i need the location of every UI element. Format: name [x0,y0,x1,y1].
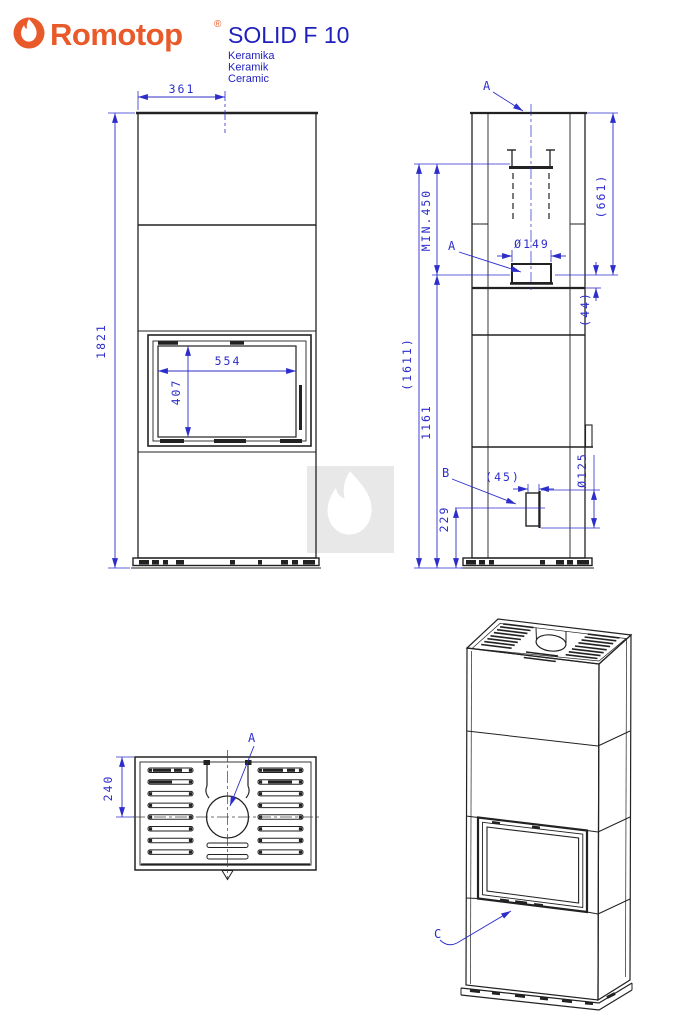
svg-text:C: C [434,927,442,941]
iso-flue-hole [524,628,567,662]
svg-text:240: 240 [101,775,115,802]
dim-front-height: 1821 [94,113,135,568]
svg-text:(1611): (1611) [400,337,414,391]
iso-grille-right [566,634,620,658]
label-top-outlet: A [483,79,523,111]
side-base [461,558,594,568]
svg-text:Ø149: Ø149 [514,237,550,251]
iso-panel-joints [466,731,630,914]
dim-front-width: 361 [138,82,225,133]
iso-view: C [434,619,632,1010]
front-view: 361 1821 554 407 [94,82,321,568]
svg-text:B: B [442,466,450,480]
dim-outlet-to-joint: (44) [578,262,596,327]
dim-front-width-text: 361 [169,82,196,96]
dim-rear-outlet-from-top: (661) [594,113,613,275]
front-base-hatch [139,560,315,565]
iso-door-glass [487,827,579,903]
romotop-logo-icon [14,18,45,49]
top-body-outline [135,757,316,870]
svg-text:MIN.450: MIN.450 [419,189,433,251]
side-rear-bracket [586,425,593,447]
dim-min-clearance: MIN.450 [419,164,437,275]
brand-name: Romotop [50,17,183,52]
iso-back-edge-line [626,638,627,977]
iso-base-hatch [470,991,615,1004]
dim-rear-outlet-height: 1161 [419,275,437,568]
subtitle-keramik: Keramik [228,62,269,74]
iso-door-marks [492,821,543,907]
top-grille-shading [150,769,295,784]
technical-drawing-canvas: Romotop ® SOLID F 10 Keramika Keramik Ce… [0,0,700,1024]
svg-text:A: A [448,239,456,253]
svg-text:229: 229 [437,506,451,533]
drawing-page: Romotop ® SOLID F 10 Keramika Keramik Ce… [0,0,700,1024]
label-iso-door: C [434,911,511,945]
front-base [131,558,321,568]
central-air-inlet [526,491,540,528]
watermark [307,466,394,553]
top-view: 240 A [101,731,322,880]
side-view: (1611) MIN.450 1161 (661) (44) Ø149 [400,79,618,568]
dim-front-height-text: 1821 [94,323,108,359]
dim-glass-width-text: 554 [215,354,242,368]
dim-glass-height-text: 407 [169,379,183,406]
label-top-view-flue: A [230,731,256,806]
svg-text:1161: 1161 [419,404,433,440]
subtitle-ceramic: Ceramic [228,73,269,85]
registered-mark: ® [214,19,222,30]
side-extension-lines [414,113,618,568]
svg-text:Ø125: Ø125 [575,452,589,488]
model-title: SOLID F 10 [228,22,349,48]
svg-text:(45): (45) [485,470,521,484]
dim-inlet-height: 229 [437,506,456,568]
side-base-hatch [466,560,589,565]
dim-glass-height: 407 [169,346,188,437]
svg-text:(44): (44) [578,291,592,327]
dim-flue-center-depth: 240 [101,757,134,817]
iso-door [478,818,587,913]
rear-flue-outlet [510,264,553,284]
svg-text:A: A [248,731,256,745]
svg-text:A: A [483,79,491,93]
svg-text:(661): (661) [594,174,608,219]
label-rear-outlet: A [448,239,521,272]
dim-glass-width: 554 [158,354,296,371]
dim-top-outlet-height: (1611) [400,164,419,568]
dim-flue-diameter: Ø149 [497,237,566,256]
subtitle-keramika: Keramika [228,50,275,62]
header: Romotop ® SOLID F 10 Keramika Keramik Ce… [14,17,350,85]
dim-inlet-offset: (45) [485,470,554,489]
